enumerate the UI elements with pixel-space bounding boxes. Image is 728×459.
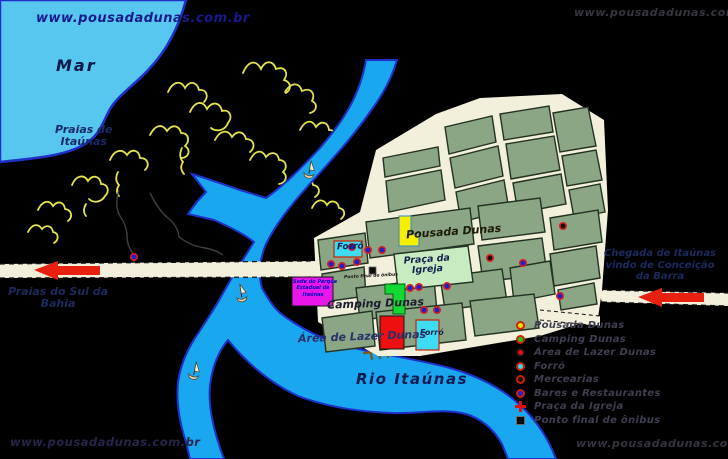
legend-lazer-icon xyxy=(516,348,525,357)
road-east-label-line2: vindo de Conceição xyxy=(596,260,724,272)
legend-row-bus: Ponto final de ônibus xyxy=(516,414,721,428)
legend-pousada-icon xyxy=(516,321,525,330)
road-east-label-line1: Chegada de Itaúnas xyxy=(596,248,724,260)
beaches-label-line2: Itaúnas xyxy=(55,136,112,148)
legend-mercearias-icon xyxy=(516,375,525,384)
sede-label-line3: Itaúnas xyxy=(293,292,333,298)
legend-bus-stop-icon xyxy=(516,416,525,425)
watermark-bottom-left: www.pousadadunas.com.br xyxy=(10,436,200,448)
legend-camping-label: Camping Dunas xyxy=(534,334,626,345)
legend-forro-icon xyxy=(516,362,525,371)
legend-forro-label: Forró xyxy=(534,361,565,372)
plaza-label: Praça da Igreja xyxy=(403,253,451,276)
legend-row-lazer: Área de Lazer Dunas xyxy=(516,346,721,360)
legend-row-pousada: Pousada Dunas xyxy=(516,319,721,333)
road-west-label-line1: Praias do Sul da xyxy=(8,286,108,298)
sea-label: Mar xyxy=(56,58,97,75)
legend-bus-label: Ponto final de ônibus xyxy=(534,415,660,426)
beaches-label: Praias de Itaúnas xyxy=(55,124,112,147)
legend-mercearias-label: Mercearias xyxy=(534,374,599,385)
watermark-top-left: www.pousadadunas.com.br xyxy=(36,12,250,26)
legend-pousada-label: Pousada Dunas xyxy=(534,320,625,331)
watermark-top-right: www.pousadadunas.com.br xyxy=(574,7,728,19)
legend-row-mercearias: Mercearias xyxy=(516,373,721,387)
legend-praca-label: Praça da Igreja xyxy=(534,401,624,412)
legend-row-forro: Forró xyxy=(516,360,721,374)
legend-bares-label: Bares e Restaurantes xyxy=(534,388,661,399)
road-east-label: Chegada de Itaúnas vindo de Conceição da… xyxy=(596,248,724,283)
legend-camping-icon xyxy=(516,335,525,344)
legend-row-bares: Bares e Restaurantes xyxy=(516,387,721,401)
legend: Pousada Dunas Camping Dunas Área de Laze… xyxy=(516,319,721,427)
legend-church-cross-icon xyxy=(516,402,525,411)
map-screenshot: www.pousadadunas.com.br www.pousadadunas… xyxy=(0,0,728,459)
legend-bares-icon xyxy=(516,389,525,398)
road-west-label: Praias do Sul da Bahia xyxy=(8,286,108,309)
road-east-label-line3: da Barra xyxy=(596,271,724,283)
forro-main-label: Forró xyxy=(337,243,364,253)
road-west-label-line2: Bahia xyxy=(8,298,108,310)
watermark-bottom-right: www.pousadadunas.com.br xyxy=(576,438,728,450)
beaches-label-line1: Praias de xyxy=(55,124,112,136)
legend-lazer-label: Área de Lazer Dunas xyxy=(534,347,656,358)
sede-label-line2: Estadual de xyxy=(293,285,333,291)
sede-parque-label: Sede do Parque Estadual de Itaúnas xyxy=(293,279,333,298)
legend-row-camping: Camping Dunas xyxy=(516,333,721,347)
river-label: Rio Itaúnas xyxy=(356,372,468,388)
legend-row-praca: Praça da Igreja xyxy=(516,400,721,414)
